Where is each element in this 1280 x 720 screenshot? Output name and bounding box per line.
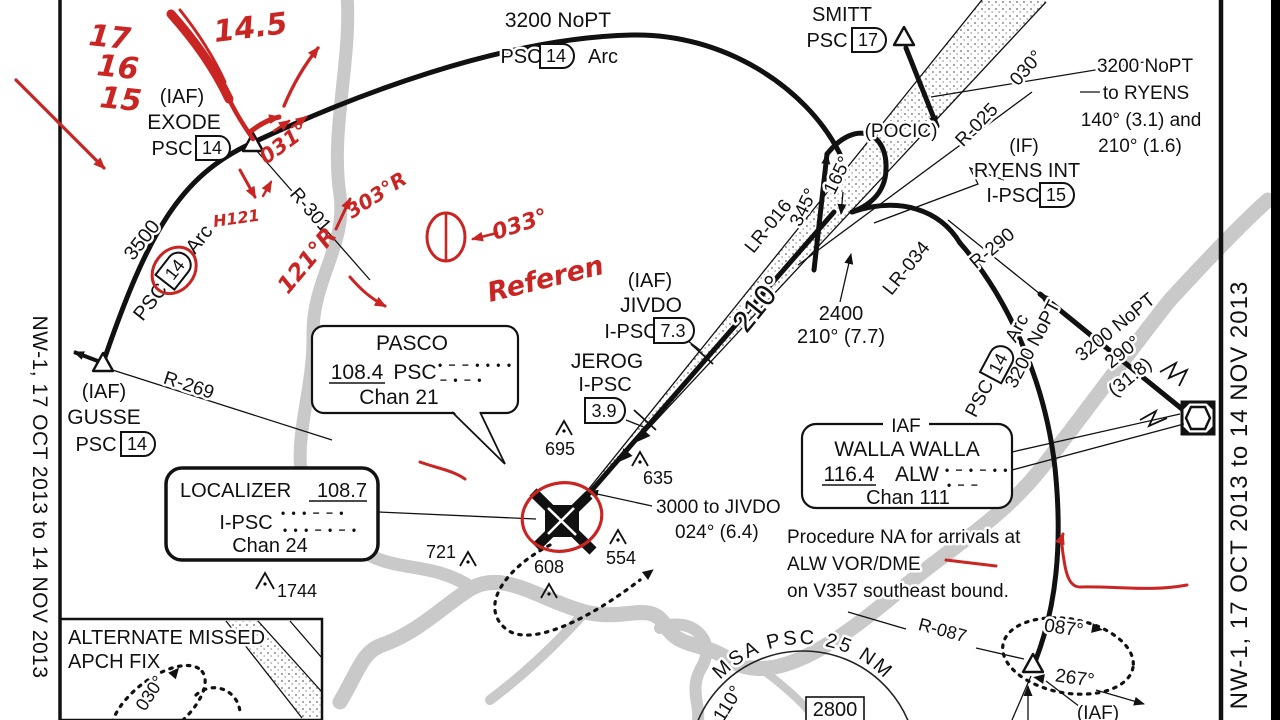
pasco-channel: Chan 21 — [359, 386, 438, 409]
obstacle-721: 721 — [426, 542, 476, 566]
localizer-channel: Chan 24 — [232, 535, 308, 557]
procedure-note-1: Procedure NA for arrivals at — [787, 527, 1021, 548]
procedure-note-3: on V357 southeast bound. — [787, 581, 1009, 602]
hw-033: 033° — [489, 204, 551, 245]
walla-morse-1: • − • − • • — [945, 463, 1009, 477]
gusse-psc: PSC — [75, 434, 116, 456]
arc-top-dme: 14 — [546, 46, 566, 66]
localizer-box: LOCALIZER 108.7 I-PSC • • • − − • • • • … — [166, 468, 378, 560]
pasco-morse-1: • − − • • • • — [438, 358, 513, 372]
red-arrow-down-1 — [240, 170, 255, 197]
iaf-br-triangle — [1023, 654, 1043, 672]
walla-freq: 116.4 — [824, 463, 875, 486]
localizer-freq: 108.7 — [317, 480, 367, 502]
exode-psc: PSC — [151, 138, 192, 160]
hold087-label: 087° — [1043, 615, 1085, 641]
hw-h121: H121 — [212, 206, 261, 231]
lr034-label: LR-034 — [879, 237, 935, 299]
binding-date-right: NW-1, 17 OCT 2013 to 14 NOV 2013 — [1226, 281, 1253, 710]
pocic-label: (POCIC) — [865, 121, 938, 142]
walla-id: ALW — [895, 463, 939, 486]
alternate-missed-box: ALTERNATE MISSED APCH FIX 030° — [60, 619, 322, 720]
exode-dme: 14 — [202, 138, 222, 158]
pasco-id: PSC — [393, 361, 436, 384]
hw-referen: Referen — [484, 250, 607, 309]
nopt-note-2: to RYENS — [1103, 83, 1189, 104]
red-stray-stroke — [420, 462, 465, 479]
jerog-id: I-PSC — [578, 374, 631, 396]
binding-date-left: NW-1, 17 OCT 2013 to 14 NOV 2013 — [28, 315, 51, 678]
obstacle-554: 554 — [606, 530, 636, 568]
nopt-note-1: 3200 NoPT — [1097, 56, 1194, 77]
svg-text:721: 721 — [426, 542, 456, 562]
smitt-triangle — [894, 27, 914, 45]
hold267-arrowhead — [1032, 672, 1045, 684]
svg-text:695: 695 — [545, 439, 575, 459]
localizer-id: I-PSC — [219, 512, 272, 534]
red-arrow-121 — [350, 277, 385, 306]
svg-text:554: 554 — [606, 548, 636, 568]
ryens-name: RYENS INT — [974, 160, 1080, 182]
alt-box-title-1: ALTERNATE MISSED — [68, 627, 265, 649]
obstacle-695: 695 — [545, 421, 575, 459]
missed-approach-arrowhead — [642, 565, 657, 580]
obstacle-635: 635 — [632, 452, 673, 488]
pasco-name: PASCO — [376, 332, 448, 355]
jivdo-name: JIVDO — [620, 294, 682, 317]
pasco-box: PASCO 108.4 PSC • − − • • • • − • − • Ch… — [312, 326, 518, 464]
svg-text:608: 608 — [534, 557, 564, 577]
arc-left-arc: Arc — [182, 221, 218, 258]
video-frame: MSA PSC 25 NM 2800 110° ALTERNATE MISSED… — [0, 0, 1280, 720]
iaf-br-label: (IAF) — [1077, 703, 1119, 720]
pasco-freq: 108.4 — [331, 361, 384, 384]
approach-chart-plan-view: MSA PSC 25 NM 2800 110° ALTERNATE MISSED… — [0, 0, 1280, 720]
walla-iaf: IAF — [891, 416, 921, 437]
gusse-name: GUSSE — [67, 406, 141, 429]
walla-morse-2: • − − — [947, 478, 979, 492]
localizer-box-leader — [379, 512, 536, 519]
gusse-iaf: (IAF) — [82, 381, 126, 403]
jerog-name: JEROG — [571, 350, 643, 373]
alt2400-arrow — [840, 254, 851, 302]
to-jivdo-1: 3000 to JIVDO — [656, 497, 781, 518]
walla-channel: Chan 111 — [866, 487, 950, 509]
red-underline-alw — [946, 560, 996, 566]
r025-label: R-025 — [952, 99, 1003, 151]
ryens-if: (IF) — [1009, 136, 1039, 157]
vortac-symbol — [1182, 402, 1214, 434]
r290-label: R-290 — [966, 224, 1019, 273]
msa-bearing: 110° — [709, 682, 747, 720]
nopt-note-4: 210° (1.6) — [1098, 136, 1182, 157]
jivdo-dme: 7.3 — [660, 321, 685, 341]
walla-walla-box: IAF WALLA WALLA 116.4 ALW • − • − • • • … — [802, 414, 1184, 509]
r269-label: R-269 — [161, 368, 217, 404]
arc-left-psc: PSC — [129, 279, 172, 325]
alt2400-label: 2400 — [819, 303, 864, 325]
video-edge-bar — [1271, 0, 1280, 720]
msa-altitude: 2800 — [813, 699, 858, 720]
smitt-psc: PSC — [806, 30, 847, 52]
r087-label: R-087 — [916, 614, 969, 646]
course2400-label: 210° (7.7) — [797, 326, 885, 348]
alt-box-title-2: APCH FIX — [68, 651, 160, 673]
smitt-dme: 17 — [858, 30, 878, 50]
nopt-note-3: 140° (3.1) and — [1081, 110, 1202, 131]
airport-symbol — [533, 492, 593, 551]
arc-top-altitude: 3200 NoPT — [505, 9, 611, 32]
arc-top-psc: PSC — [500, 46, 541, 68]
pasco-morse-2: − • − • — [440, 373, 483, 387]
hw-303r: 303°R — [342, 166, 411, 223]
red-squiggle-arrow — [1062, 534, 1187, 588]
exode-name: EXODE — [147, 111, 221, 134]
procedure-note-2: ALW VOR/DME — [787, 554, 921, 575]
ryens-dme: 15 — [1046, 185, 1066, 205]
arc-top-arc: Arc — [588, 46, 618, 68]
chart-borders — [60, 0, 1280, 720]
r087-line-b — [976, 648, 1024, 659]
obstacle-1744: 1744 — [256, 573, 317, 601]
hold267-label: 267° — [1054, 665, 1096, 691]
jivdo-iaf: (IAF) — [628, 270, 672, 292]
smitt-name: SMITT — [812, 4, 872, 26]
localizer-title: LOCALIZER — [180, 480, 291, 502]
arc-right-psc: PSC — [962, 376, 999, 420]
hw-15: 15 — [98, 80, 143, 119]
zigzag-break-1 — [1160, 363, 1187, 386]
jerog-dme: 3.9 — [591, 401, 616, 421]
exode-iaf: (IAF) — [160, 86, 204, 108]
br-exit-arrow — [1096, 690, 1144, 704]
ryens-id: I-PSC — [986, 185, 1039, 207]
red-arrow-upright — [284, 48, 318, 106]
localizer-morse-1: • • • − − • — [281, 506, 345, 520]
gusse-dme: 14 — [127, 434, 147, 454]
jivdo-id: I-PSC — [604, 321, 657, 343]
svg-text:635: 635 — [643, 468, 673, 488]
red-arrow-hook — [263, 182, 271, 196]
walla-name: WALLA WALLA — [834, 438, 980, 461]
to-jivdo-2: 024° (6.4) — [675, 522, 759, 543]
jivdo-box-leader — [688, 341, 700, 350]
svg-text:1744: 1744 — [277, 581, 317, 601]
hw-14-5: 14.5 — [212, 6, 290, 50]
